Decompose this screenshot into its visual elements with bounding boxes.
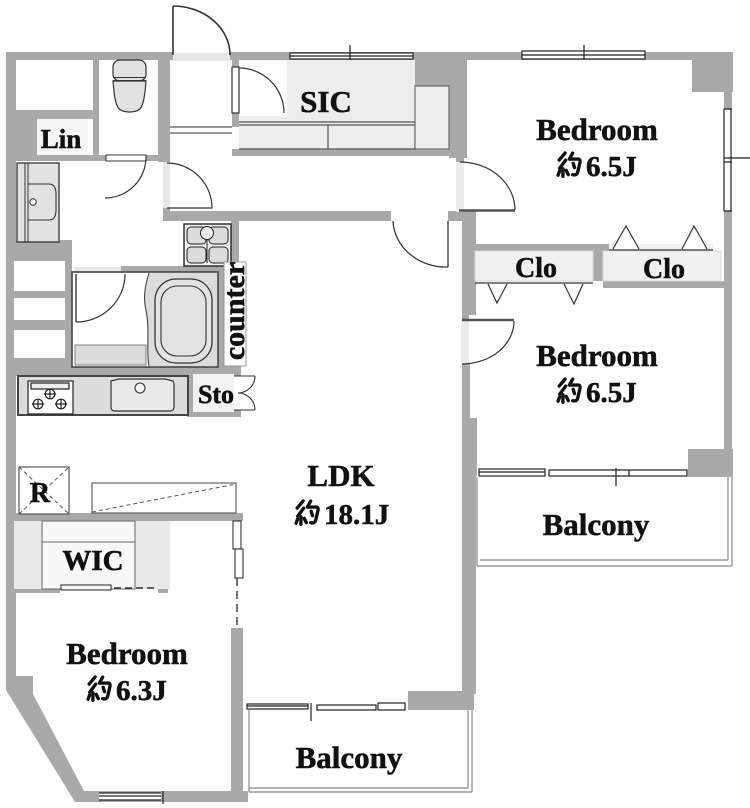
svg-text:R: R [30,478,51,509]
svg-text:18.1J: 18.1J [324,499,389,531]
svg-text:6.5J: 6.5J [586,377,637,409]
svg-text:6.5J: 6.5J [586,151,637,183]
svg-text:Lin: Lin [41,124,82,154]
svg-text:Sto: Sto [198,380,234,409]
svg-text:SIC: SIC [300,84,352,119]
svg-text:Clo: Clo [643,254,685,285]
svg-text:Balcony: Balcony [296,740,403,775]
svg-text:LDK: LDK [307,458,374,493]
svg-text:Bedroom: Bedroom [66,636,188,671]
svg-text:WIC: WIC [62,545,123,577]
svg-text:Clo: Clo [515,253,557,284]
svg-text:Bedroom: Bedroom [536,338,658,373]
svg-text:6.3J: 6.3J [116,675,167,707]
svg-text:Balcony: Balcony [543,507,650,542]
svg-text:counter: counter [218,262,251,360]
svg-text:Bedroom: Bedroom [536,112,658,147]
